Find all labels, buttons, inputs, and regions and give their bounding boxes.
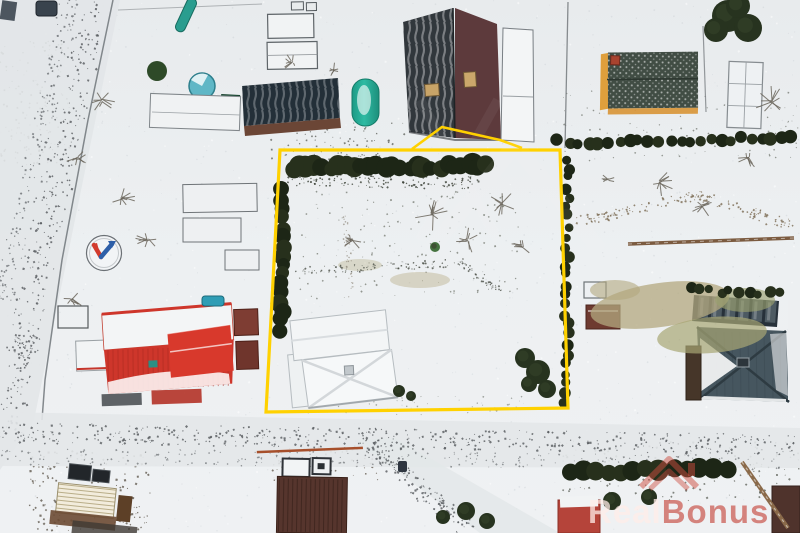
green-tree bbox=[147, 61, 167, 81]
parked-car bbox=[36, 1, 57, 16]
roof-icon-chimney bbox=[688, 463, 695, 476]
trampoline-logo bbox=[87, 236, 122, 271]
white-hutch bbox=[282, 459, 309, 477]
aerial-photo: RealBonus bbox=[0, 0, 800, 533]
small-vehicle bbox=[398, 461, 407, 472]
white-greenhouse bbox=[727, 61, 763, 128]
aerial-photo-canvas: RealBonus bbox=[0, 0, 800, 533]
garden-bed-frame bbox=[183, 183, 257, 212]
small-pool bbox=[202, 296, 224, 306]
chimney bbox=[344, 366, 353, 375]
plot-house bbox=[286, 309, 399, 409]
garden-bed-frame bbox=[183, 218, 241, 242]
window-frames bbox=[92, 469, 110, 483]
watermark-text: RealBonus bbox=[588, 493, 769, 530]
garden-bed-frame bbox=[225, 250, 259, 270]
white-garage bbox=[501, 28, 534, 142]
roof-vent bbox=[737, 358, 749, 367]
lattice-porch bbox=[236, 341, 259, 370]
brown-chimney-wall bbox=[686, 346, 701, 400]
yellow-house bbox=[599, 48, 700, 117]
skylight bbox=[425, 84, 440, 97]
lattice-porch bbox=[234, 309, 259, 336]
window-frames bbox=[68, 464, 91, 481]
skylight bbox=[464, 72, 477, 88]
teal-tank bbox=[352, 79, 379, 126]
chimney bbox=[611, 56, 620, 65]
dark-structure bbox=[0, 0, 17, 21]
barn-right-slope bbox=[455, 8, 501, 140]
